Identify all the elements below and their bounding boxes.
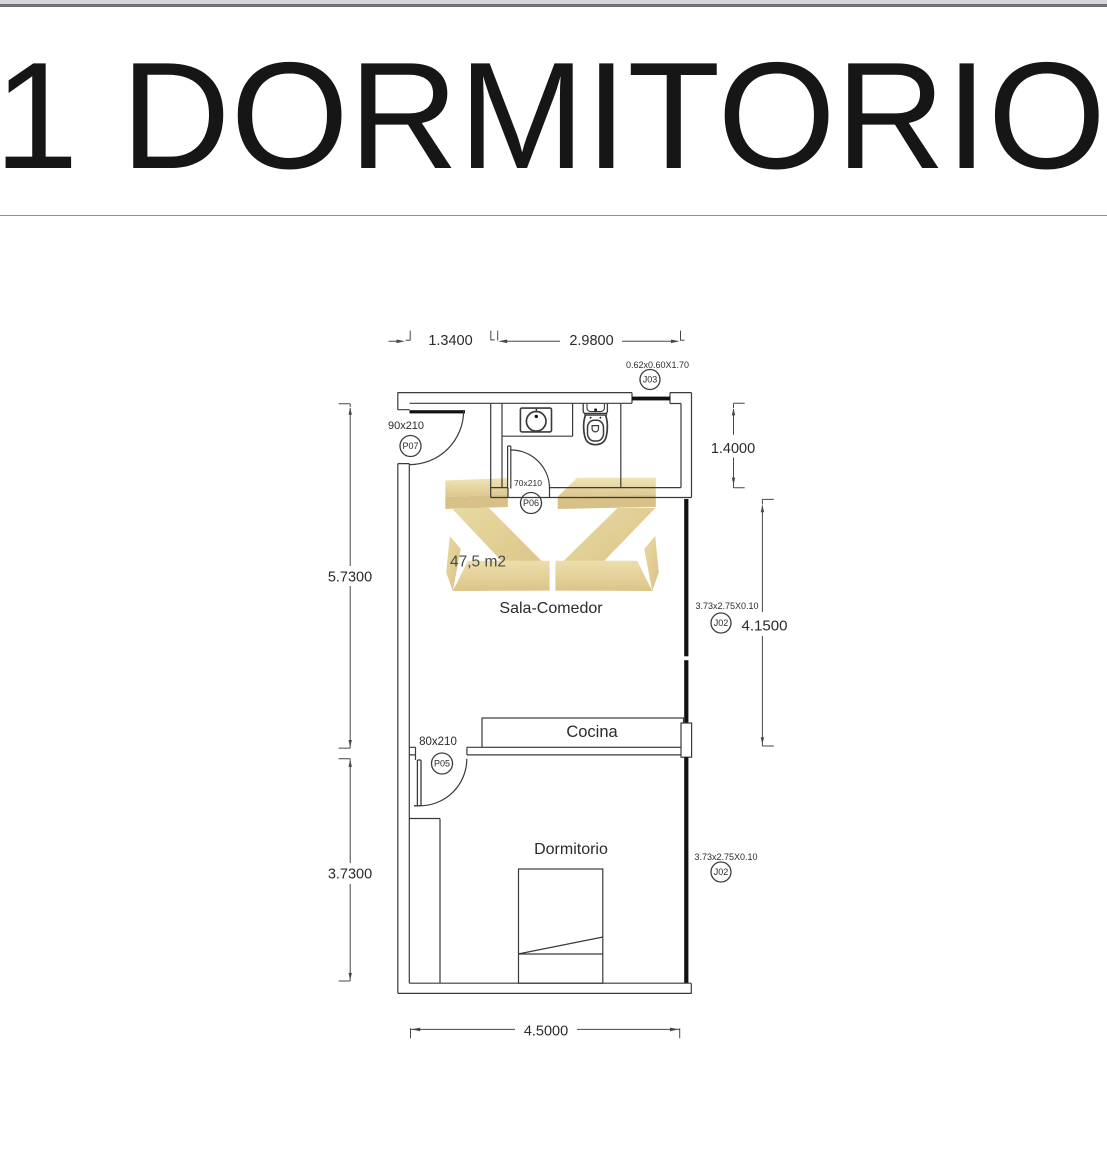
svg-text:1.3400: 1.3400 — [428, 333, 472, 349]
svg-text:4.1500: 4.1500 — [742, 618, 788, 635]
svg-text:47,5 m2: 47,5 m2 — [450, 554, 506, 571]
svg-text:0.62x0.60X1.70: 0.62x0.60X1.70 — [626, 360, 689, 370]
svg-text:Sala-Comedor: Sala-Comedor — [499, 600, 603, 617]
svg-text:90x210: 90x210 — [388, 420, 424, 432]
svg-text:1.4000: 1.4000 — [711, 441, 755, 457]
svg-text:3.7300: 3.7300 — [328, 867, 372, 883]
svg-text:P06: P06 — [523, 498, 539, 508]
svg-text:4.5000: 4.5000 — [524, 1024, 568, 1040]
svg-text:P07: P07 — [402, 441, 418, 451]
svg-text:J03: J03 — [643, 375, 658, 385]
svg-text:2.9800: 2.9800 — [569, 333, 613, 349]
svg-text:3.73x2.75X0.10: 3.73x2.75X0.10 — [694, 852, 757, 862]
svg-text:3.73x2.75X0.10: 3.73x2.75X0.10 — [695, 601, 758, 611]
svg-text:Dormitorio: Dormitorio — [534, 841, 608, 858]
svg-text:Cocina: Cocina — [566, 723, 618, 741]
svg-text:80x210: 80x210 — [419, 736, 457, 748]
svg-text:J02: J02 — [714, 618, 729, 628]
svg-text:70x210: 70x210 — [514, 478, 542, 488]
svg-text:J02: J02 — [714, 867, 729, 877]
svg-text:5.7300: 5.7300 — [328, 570, 372, 586]
svg-text:P05: P05 — [434, 759, 450, 769]
